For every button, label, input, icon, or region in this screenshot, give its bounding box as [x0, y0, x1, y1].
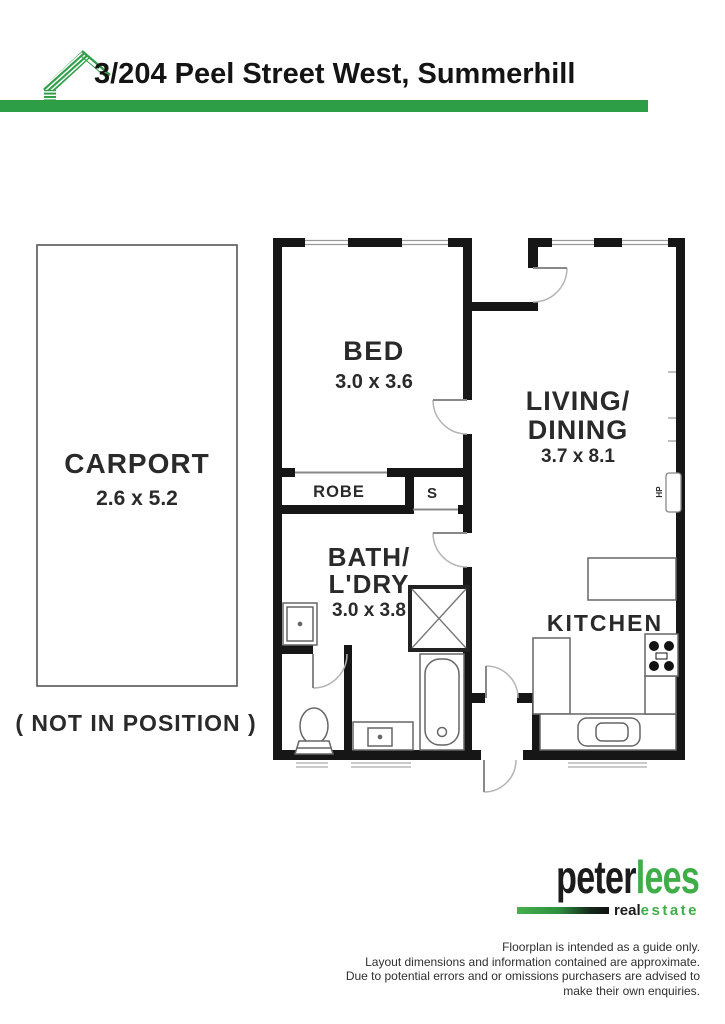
- cooktop: [645, 634, 678, 676]
- disclaimer-line: Layout dimensions and information contai…: [346, 955, 700, 970]
- kitchen-bench: [588, 558, 676, 600]
- kitchen-label: KITCHEN: [547, 610, 663, 636]
- carport: CARPORT 2.6 x 5.2 ( NOT IN POSITION ): [15, 245, 256, 736]
- bathtub: [420, 654, 464, 750]
- carport-dims: 2.6 x 5.2: [96, 487, 178, 510]
- entry-opening: [481, 750, 523, 760]
- carport-note: ( NOT IN POSITION ): [15, 710, 256, 736]
- toilet: [295, 708, 333, 754]
- window: [402, 238, 448, 247]
- tagline-primary: real: [614, 902, 641, 919]
- disclaimer-line: make their own enquiries.: [346, 984, 700, 999]
- entry-door: [533, 268, 567, 302]
- window-sills: [296, 763, 647, 767]
- window: [305, 238, 348, 247]
- bed-label: BED: [343, 336, 405, 366]
- disclaimer-line: Floorplan is intended as a guide only.: [346, 940, 700, 955]
- bed-dims: 3.0 x 3.6: [335, 371, 413, 393]
- agency-name: peterlees: [556, 854, 699, 900]
- back-door: [484, 760, 516, 792]
- agency-name-accent: lees: [636, 851, 699, 903]
- store-label: S: [427, 485, 437, 502]
- hall-door: [486, 666, 518, 698]
- bath-door: [433, 533, 467, 567]
- bath-label-1: BATH/: [328, 542, 411, 572]
- vanity: [353, 722, 413, 750]
- bath-label-2: L'DRY: [329, 569, 410, 599]
- window: [622, 238, 668, 247]
- agency-logo: peterlees realestate: [506, 854, 699, 918]
- logo-gradient-bar: [517, 907, 609, 914]
- agency-name-primary: peter: [556, 851, 636, 903]
- bath-dims: 3.0 x 3.8: [332, 600, 406, 621]
- toilet-door: [313, 654, 347, 688]
- sink: [578, 718, 640, 746]
- disclaimer-line: Due to potential errors and or omissions…: [346, 969, 700, 984]
- floorplan-page: 3/204 Peel Street West, Summerhill CARPO…: [0, 0, 725, 1024]
- heat-pump-label: HP: [655, 486, 664, 498]
- living-label-1: LIVING/: [526, 386, 631, 416]
- living-dims: 3.7 x 8.1: [541, 446, 615, 467]
- shower: [410, 587, 468, 650]
- tagline-accent: estate: [641, 902, 699, 919]
- heat-pump: HP: [655, 473, 681, 512]
- window: [552, 238, 594, 247]
- disclaimer: Floorplan is intended as a guide only. L…: [346, 940, 700, 998]
- robe-label: ROBE: [313, 483, 365, 501]
- agency-tagline: realestate: [614, 903, 699, 918]
- carport-label: CARPORT: [64, 448, 209, 479]
- living-label-2: DINING: [528, 415, 629, 445]
- laundry-trough: [283, 603, 317, 645]
- bed-door: [433, 400, 467, 434]
- agency-tagline-row: realestate: [506, 903, 699, 918]
- wall-ticks: [668, 372, 676, 441]
